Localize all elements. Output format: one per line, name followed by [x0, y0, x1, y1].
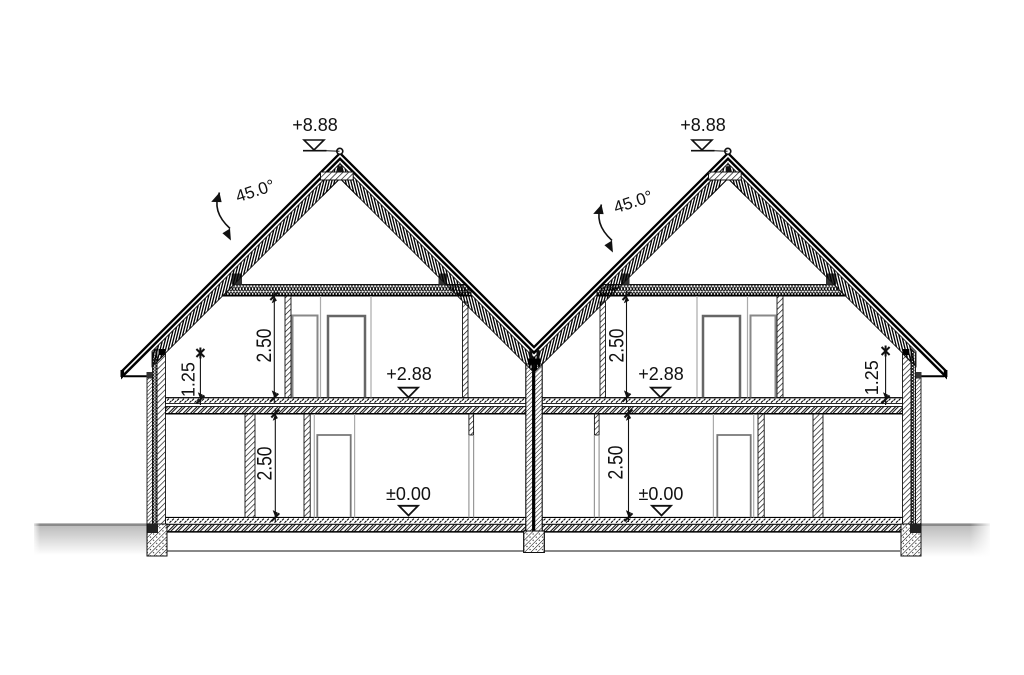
svg-text:±0.00: ±0.00 — [386, 484, 431, 504]
svg-text:+8.88: +8.88 — [292, 115, 338, 135]
svg-text:+8.88: +8.88 — [680, 115, 726, 135]
svg-text:+2.88: +2.88 — [386, 364, 432, 384]
svg-text:+2.88: +2.88 — [638, 364, 684, 384]
svg-text:2.50: 2.50 — [606, 329, 629, 363]
svg-text:±0.00: ±0.00 — [639, 484, 684, 504]
svg-text:2.50: 2.50 — [605, 446, 628, 480]
svg-text:1.25: 1.25 — [178, 362, 198, 397]
svg-text:1.25: 1.25 — [862, 360, 882, 395]
svg-text:2.50: 2.50 — [253, 447, 276, 481]
svg-text:2.50: 2.50 — [253, 329, 276, 363]
